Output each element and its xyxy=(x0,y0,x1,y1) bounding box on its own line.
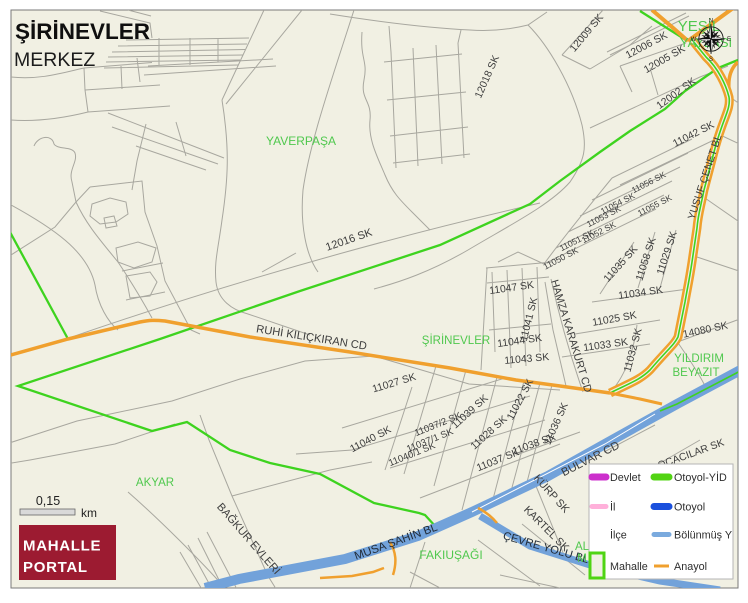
svg-text:AL: AL xyxy=(575,541,590,553)
svg-text:km: km xyxy=(81,506,97,520)
svg-text:Otoyol: Otoyol xyxy=(674,502,705,514)
svg-text:ŞİRİNEVLER: ŞİRİNEVLER xyxy=(15,19,150,44)
svg-text:YILDIRIM: YILDIRIM xyxy=(674,353,724,365)
svg-text:YAVERPAŞA: YAVERPAŞA xyxy=(266,134,336,148)
svg-text:MAHALLE: MAHALLE xyxy=(23,538,101,555)
svg-text:E: E xyxy=(727,37,731,43)
svg-text:İlçe: İlçe xyxy=(610,529,627,542)
svg-text:AKYAR: AKYAR xyxy=(136,477,174,489)
svg-text:Mahalle: Mahalle xyxy=(610,561,648,573)
svg-text:MERKEZ: MERKEZ xyxy=(14,49,95,71)
svg-text:PORTAL: PORTAL xyxy=(23,559,88,576)
svg-text:0,15: 0,15 xyxy=(36,494,60,508)
svg-text:S: S xyxy=(709,57,713,63)
svg-text:BEYAZIT: BEYAZIT xyxy=(672,367,719,379)
svg-text:FAKIUŞAĞI: FAKIUŞAĞI xyxy=(419,547,482,562)
svg-text:Bölünmüş Y: Bölünmüş Y xyxy=(674,530,732,542)
svg-text:M: M xyxy=(577,553,587,565)
svg-text:İl: İl xyxy=(610,501,615,514)
svg-text:Devlet: Devlet xyxy=(610,472,641,484)
svg-text:Otoyol-YİD: Otoyol-YİD xyxy=(674,471,727,484)
svg-text:W: W xyxy=(691,37,697,43)
svg-text:N: N xyxy=(709,19,713,25)
svg-text:ŞİRİNEVLER: ŞİRİNEVLER xyxy=(422,334,490,347)
svg-text:Anayol: Anayol xyxy=(674,561,707,573)
